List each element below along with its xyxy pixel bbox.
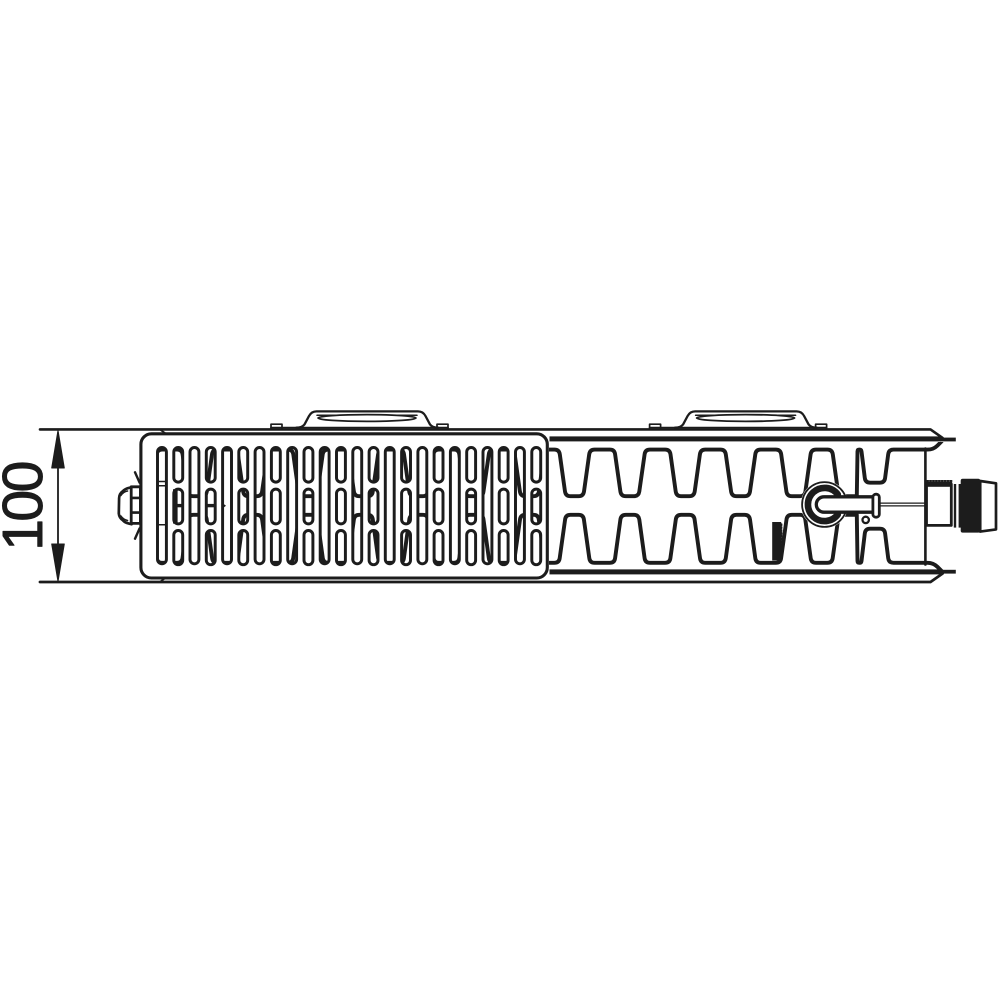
svg-text:100: 100 bbox=[0, 462, 55, 550]
